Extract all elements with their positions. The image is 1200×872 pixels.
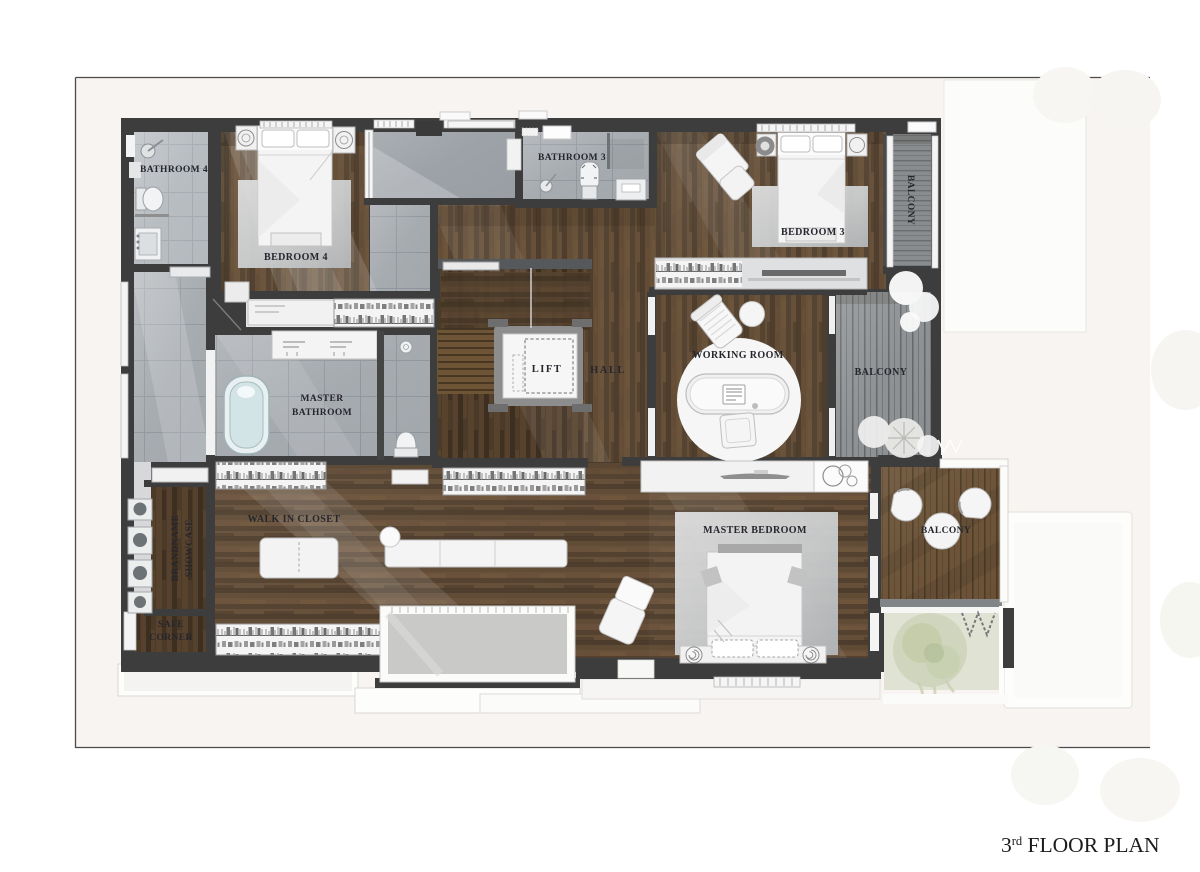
svg-text:CORNER: CORNER <box>149 633 193 643</box>
svg-text:3rd FLOOR PLAN: 3rd FLOOR PLAN <box>1001 833 1160 857</box>
svg-text:WALK IN CLOSET: WALK IN CLOSET <box>248 514 341 525</box>
svg-text:BRANDNAME: BRANDNAME <box>171 515 181 581</box>
svg-text:MASTER: MASTER <box>300 394 343 404</box>
svg-text:BATHROOM 4: BATHROOM 4 <box>140 165 208 175</box>
svg-text:LIFT: LIFT <box>532 364 563 375</box>
svg-text:SAFE: SAFE <box>158 620 184 630</box>
svg-text:BEDROOM 4: BEDROOM 4 <box>264 252 328 263</box>
svg-text:HALL: HALL <box>590 365 626 376</box>
svg-text:BATHROOM 3: BATHROOM 3 <box>538 153 606 163</box>
svg-text:MASTER BEDROOM: MASTER BEDROOM <box>703 525 807 536</box>
svg-text:BALCONY: BALCONY <box>921 526 971 536</box>
svg-text:WORKING ROOM: WORKING ROOM <box>692 350 783 361</box>
svg-text:BATHROOM: BATHROOM <box>292 408 352 418</box>
svg-text:BALCONY: BALCONY <box>855 367 908 378</box>
svg-text:BALCONY: BALCONY <box>905 175 915 225</box>
svg-text:BEDROOM 3: BEDROOM 3 <box>781 227 845 238</box>
svg-text:SHOWCASE: SHOWCASE <box>185 519 195 577</box>
